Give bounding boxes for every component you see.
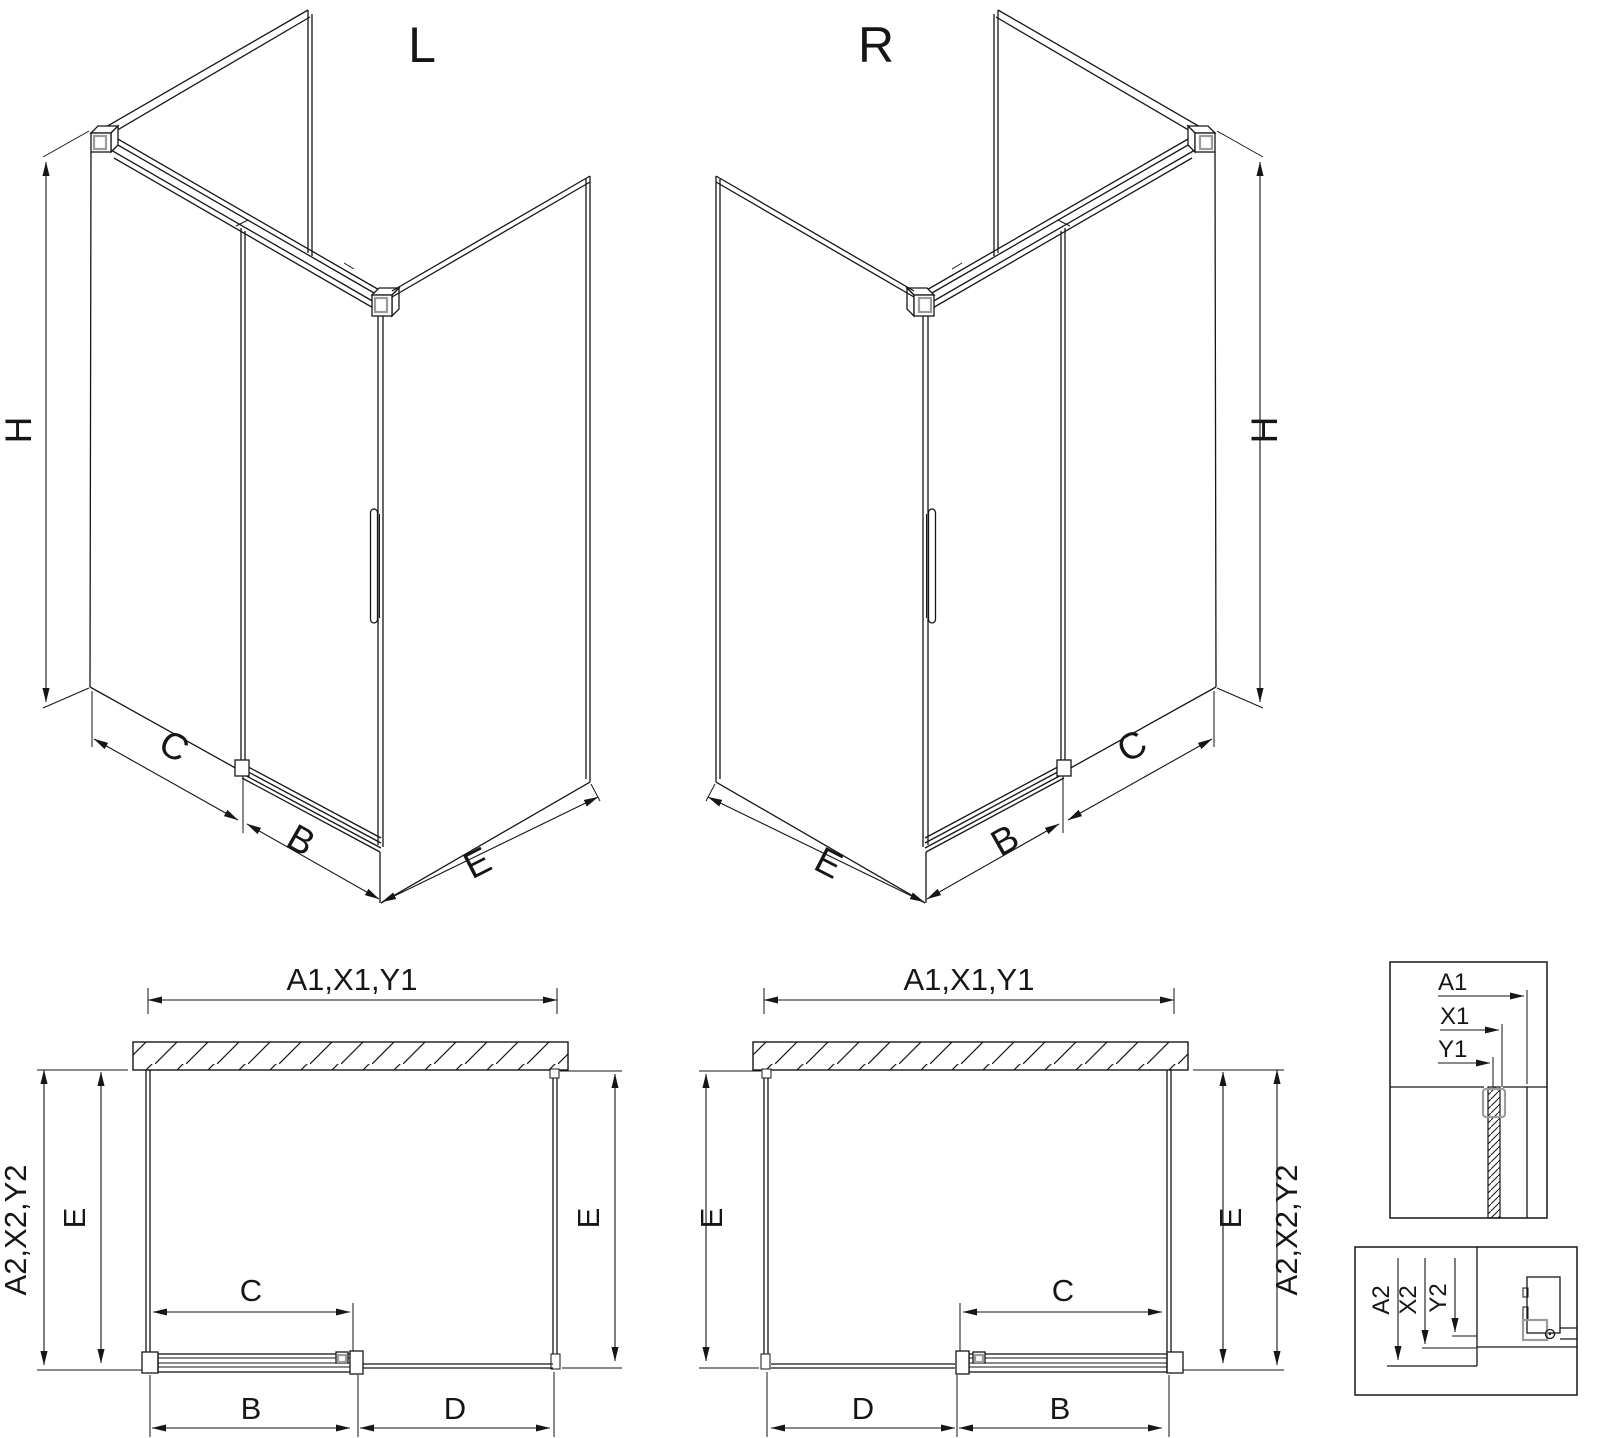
plan-view-right: A1,X1,Y1 A2,X2,Y2 E E C D bbox=[694, 962, 1304, 1437]
front-fixed-panel bbox=[90, 152, 239, 770]
front-fixed-panel bbox=[1067, 152, 1216, 770]
dim-label-total-width: A1,X1,Y1 bbox=[904, 962, 1035, 997]
dim-label-fixed-width: D bbox=[852, 1391, 874, 1426]
door-leading-edge bbox=[1061, 228, 1065, 771]
view-title-left: L bbox=[408, 17, 436, 73]
top-rail bbox=[111, 135, 382, 313]
floor-guide-block bbox=[235, 760, 249, 776]
dim-label-height: H bbox=[1244, 417, 1285, 444]
rail-hanger-tick bbox=[344, 263, 354, 269]
detail-label-y1: Y1 bbox=[1438, 1036, 1467, 1063]
door-handle bbox=[371, 509, 380, 623]
technical-drawing-sheet: H C B E L bbox=[0, 0, 1600, 1438]
corner-bracket-front bbox=[907, 288, 934, 316]
dim-label-fixed-panel: C bbox=[152, 722, 195, 771]
plan-view-left: A1,X1,Y1 A2,X2,Y2 E E C bbox=[0, 962, 622, 1437]
rail-hanger-tick bbox=[952, 263, 962, 269]
front-corner-edge bbox=[378, 316, 383, 903]
wall-section bbox=[133, 1042, 568, 1070]
detail-label-y2: Y2 bbox=[1425, 1283, 1452, 1312]
dim-label-side-panel: E bbox=[457, 839, 498, 887]
dim-label-slide-width: C bbox=[1052, 1273, 1074, 1308]
dim-label-depth-right: E bbox=[1213, 1208, 1248, 1229]
side-panel-right-glass bbox=[994, 10, 1214, 256]
side-panel-left bbox=[764, 1070, 768, 1354]
dim-label-depth-left: E bbox=[57, 1208, 92, 1229]
detail-label-x2: X2 bbox=[1395, 1285, 1422, 1314]
dim-label-total-depth: A2,X2,Y2 bbox=[1269, 1165, 1304, 1296]
dim-label-door: B bbox=[280, 816, 322, 864]
dim-label-height: H bbox=[0, 417, 39, 444]
side-panel-right bbox=[553, 1070, 557, 1354]
front-corner-edge bbox=[923, 316, 928, 903]
iso-view-right: H C B E R bbox=[706, 10, 1285, 903]
view-title-right: R bbox=[858, 17, 894, 73]
wall-bracket-back bbox=[91, 126, 118, 152]
fixed-front-panel bbox=[363, 1364, 553, 1368]
door-bottom-profile bbox=[1477, 1277, 1577, 1347]
wall-section bbox=[753, 1042, 1188, 1070]
detail-label-x1: X1 bbox=[1440, 1003, 1469, 1030]
corner-bracket-front bbox=[372, 288, 399, 316]
detail-wall-section: A1 X1 Y1 bbox=[1390, 962, 1547, 1218]
detail-label-a1: A1 bbox=[1438, 969, 1467, 996]
side-panel-left bbox=[146, 1070, 150, 1353]
side-panel-left-glass bbox=[92, 10, 312, 256]
door-leading-edge bbox=[241, 228, 245, 771]
top-rail bbox=[924, 135, 1195, 313]
iso-view-left: H C B E L bbox=[0, 10, 600, 903]
dim-label-slide-width: C bbox=[240, 1273, 262, 1308]
dim-label-door: B bbox=[984, 816, 1026, 864]
side-panel-right-glass bbox=[381, 176, 590, 903]
dim-label-depth-right: E bbox=[571, 1208, 606, 1229]
wall-bracket-back bbox=[1188, 126, 1215, 152]
detail-floor-section: A2 X2 Y2 bbox=[1355, 1247, 1577, 1395]
floor-guide-block bbox=[1057, 760, 1071, 776]
detail-label-a2: A2 bbox=[1368, 1285, 1395, 1314]
fixed-front-panel bbox=[771, 1364, 955, 1368]
side-panel-left-glass bbox=[716, 176, 925, 903]
dim-label-door-width: B bbox=[1050, 1391, 1071, 1426]
door-handle bbox=[927, 509, 936, 623]
glass-edge-section bbox=[1488, 1087, 1500, 1218]
sliding-door-assembly bbox=[142, 1351, 363, 1374]
side-panel-right bbox=[1167, 1070, 1171, 1352]
dim-label-total-width: A1,X1,Y1 bbox=[287, 962, 418, 997]
dim-label-depth-left: E bbox=[694, 1208, 729, 1229]
dim-label-fixed-panel: C bbox=[1110, 722, 1153, 771]
dim-label-total-depth: A2,X2,Y2 bbox=[0, 1165, 33, 1296]
dim-label-door-width: B bbox=[241, 1391, 262, 1426]
dim-label-fixed-width: D bbox=[444, 1391, 466, 1426]
shower-enclosure-diagram: H C B E L bbox=[0, 0, 1600, 1438]
sliding-door-assembly bbox=[956, 1351, 1183, 1374]
